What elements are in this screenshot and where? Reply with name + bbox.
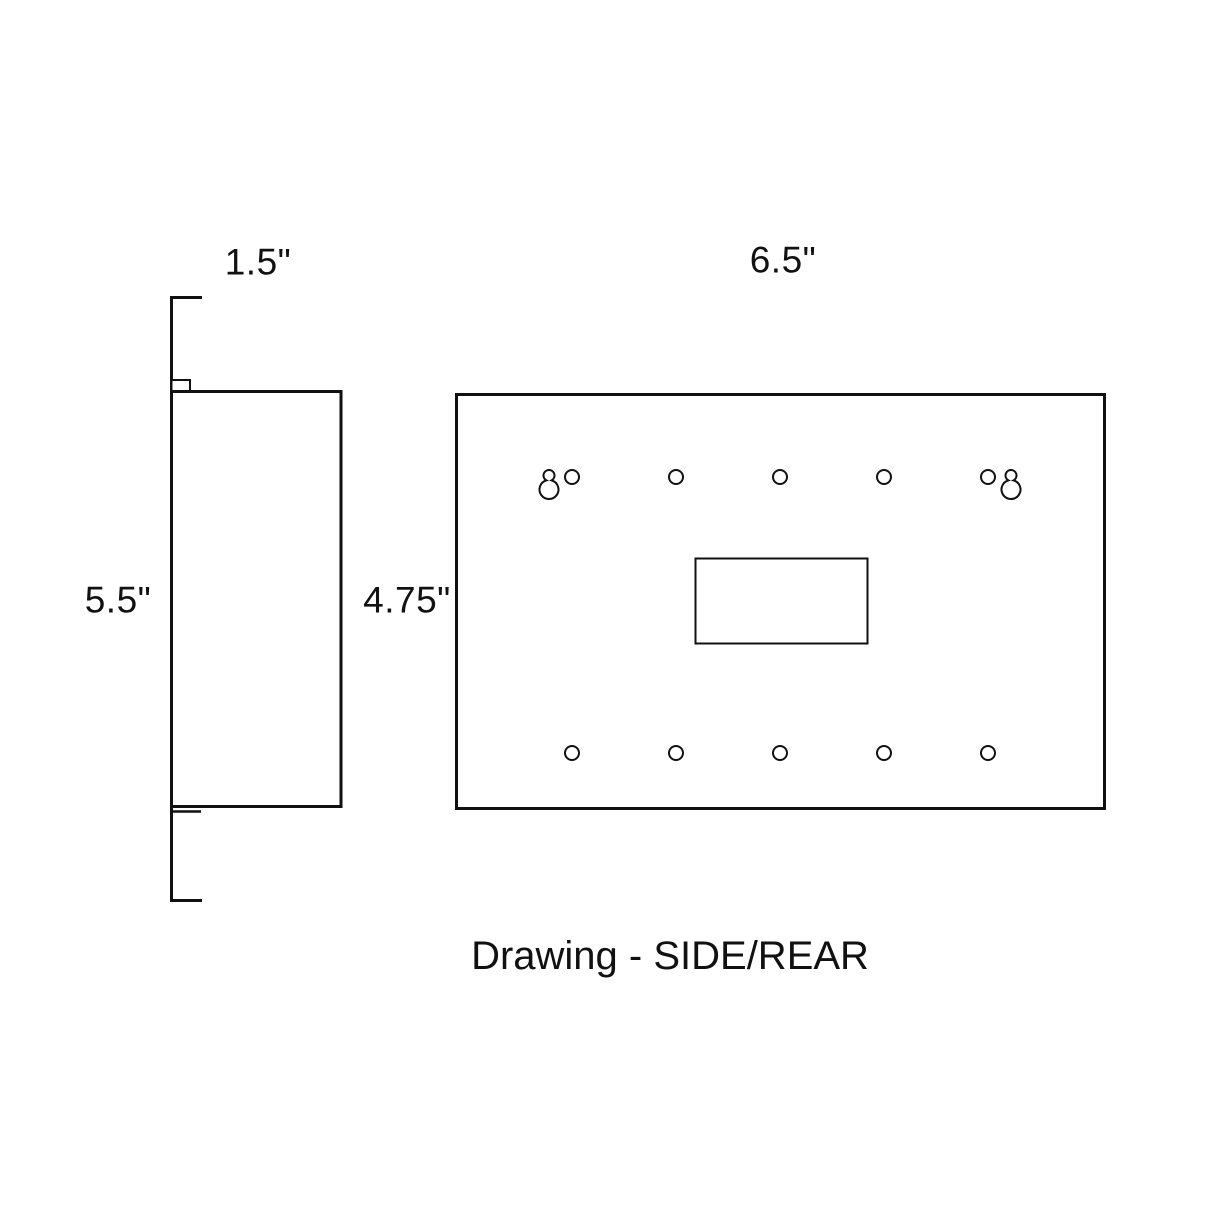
drawing-figure <box>0 0 1214 1214</box>
technical-drawing-canvas: 1.5" 6.5" 5.5" 4.75" Drawing - SIDE/REAR <box>0 0 1214 1214</box>
side-mounting-tab-notch <box>172 380 191 392</box>
dimension-label-side-depth: 1.5" <box>225 244 292 281</box>
side-enclosure-box <box>172 392 342 807</box>
rear-view <box>457 395 1105 809</box>
side-view <box>170 296 341 902</box>
dimension-label-rear-width: 6.5" <box>750 242 817 279</box>
drawing-caption: Drawing - SIDE/REAR <box>471 936 869 976</box>
dimension-label-rear-height: 4.75" <box>363 582 451 619</box>
dimension-label-side-height: 5.5" <box>85 582 152 619</box>
